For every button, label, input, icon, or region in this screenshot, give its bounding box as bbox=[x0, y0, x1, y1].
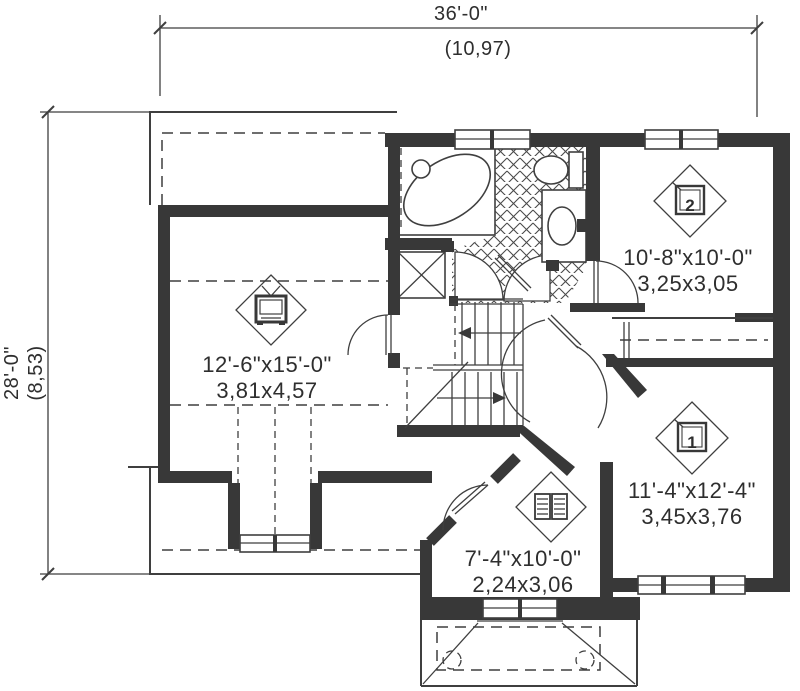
bedroom2-size-metric: 3,25x3,05 bbox=[637, 271, 738, 296]
stair-arrow-down bbox=[437, 392, 506, 404]
roof-outline bbox=[128, 112, 420, 574]
tub-faucet bbox=[412, 160, 430, 178]
dim-width-metric: (10,97) bbox=[445, 38, 512, 60]
stairs bbox=[403, 299, 523, 428]
tv-room-size-metric: 3,81x4,57 bbox=[216, 378, 317, 403]
book-icon bbox=[535, 494, 567, 519]
porch-post bbox=[443, 651, 461, 669]
bed1-closet bbox=[612, 318, 773, 358]
bedroom2-window bbox=[645, 130, 718, 149]
study-marker bbox=[516, 472, 586, 542]
bedroom1-size-imperial: 11'-4"x12'-4" bbox=[628, 478, 756, 503]
bedroom1-window bbox=[638, 576, 745, 594]
study-size-metric: 2,24x3,06 bbox=[472, 572, 573, 597]
dim-height-imperial: 28'-0" bbox=[1, 346, 23, 400]
porch-roof bbox=[421, 620, 637, 686]
stair-arrow-up bbox=[458, 327, 521, 339]
bedroom1-size-metric: 3,45x3,76 bbox=[641, 504, 742, 529]
tv-room-door bbox=[348, 315, 391, 355]
dormer-window bbox=[240, 535, 310, 552]
tv-room-size-imperial: 12'-6"x15'-0" bbox=[202, 352, 332, 377]
floor-plan: 36'-0" (10,97) 28'-0" (8,53) 2 bbox=[0, 0, 800, 691]
bathroom-window bbox=[455, 130, 530, 149]
bedroom1-number: 1 bbox=[687, 433, 696, 452]
break-line bbox=[405, 362, 468, 428]
bedroom2-number: 2 bbox=[685, 196, 694, 215]
bedroom1-marker: 1 bbox=[656, 402, 728, 474]
porch-post bbox=[576, 651, 594, 669]
bed-icon: 1 bbox=[674, 419, 706, 452]
study-window bbox=[483, 599, 557, 618]
study-size-imperial: 7'-4"x10'-0" bbox=[465, 546, 582, 571]
bedroom2-marker: 2 bbox=[654, 165, 726, 237]
vanity-sink bbox=[542, 190, 586, 262]
tv-room-marker bbox=[236, 275, 306, 345]
dim-height-metric: (8,53) bbox=[25, 345, 47, 400]
tv-icon bbox=[256, 286, 286, 325]
bedroom2-size-imperial: 10'-8"x10'-0" bbox=[623, 245, 753, 270]
dim-width-imperial: 36'-0" bbox=[434, 3, 488, 25]
bed-icon: 2 bbox=[672, 182, 704, 215]
linen-chase bbox=[398, 252, 445, 298]
